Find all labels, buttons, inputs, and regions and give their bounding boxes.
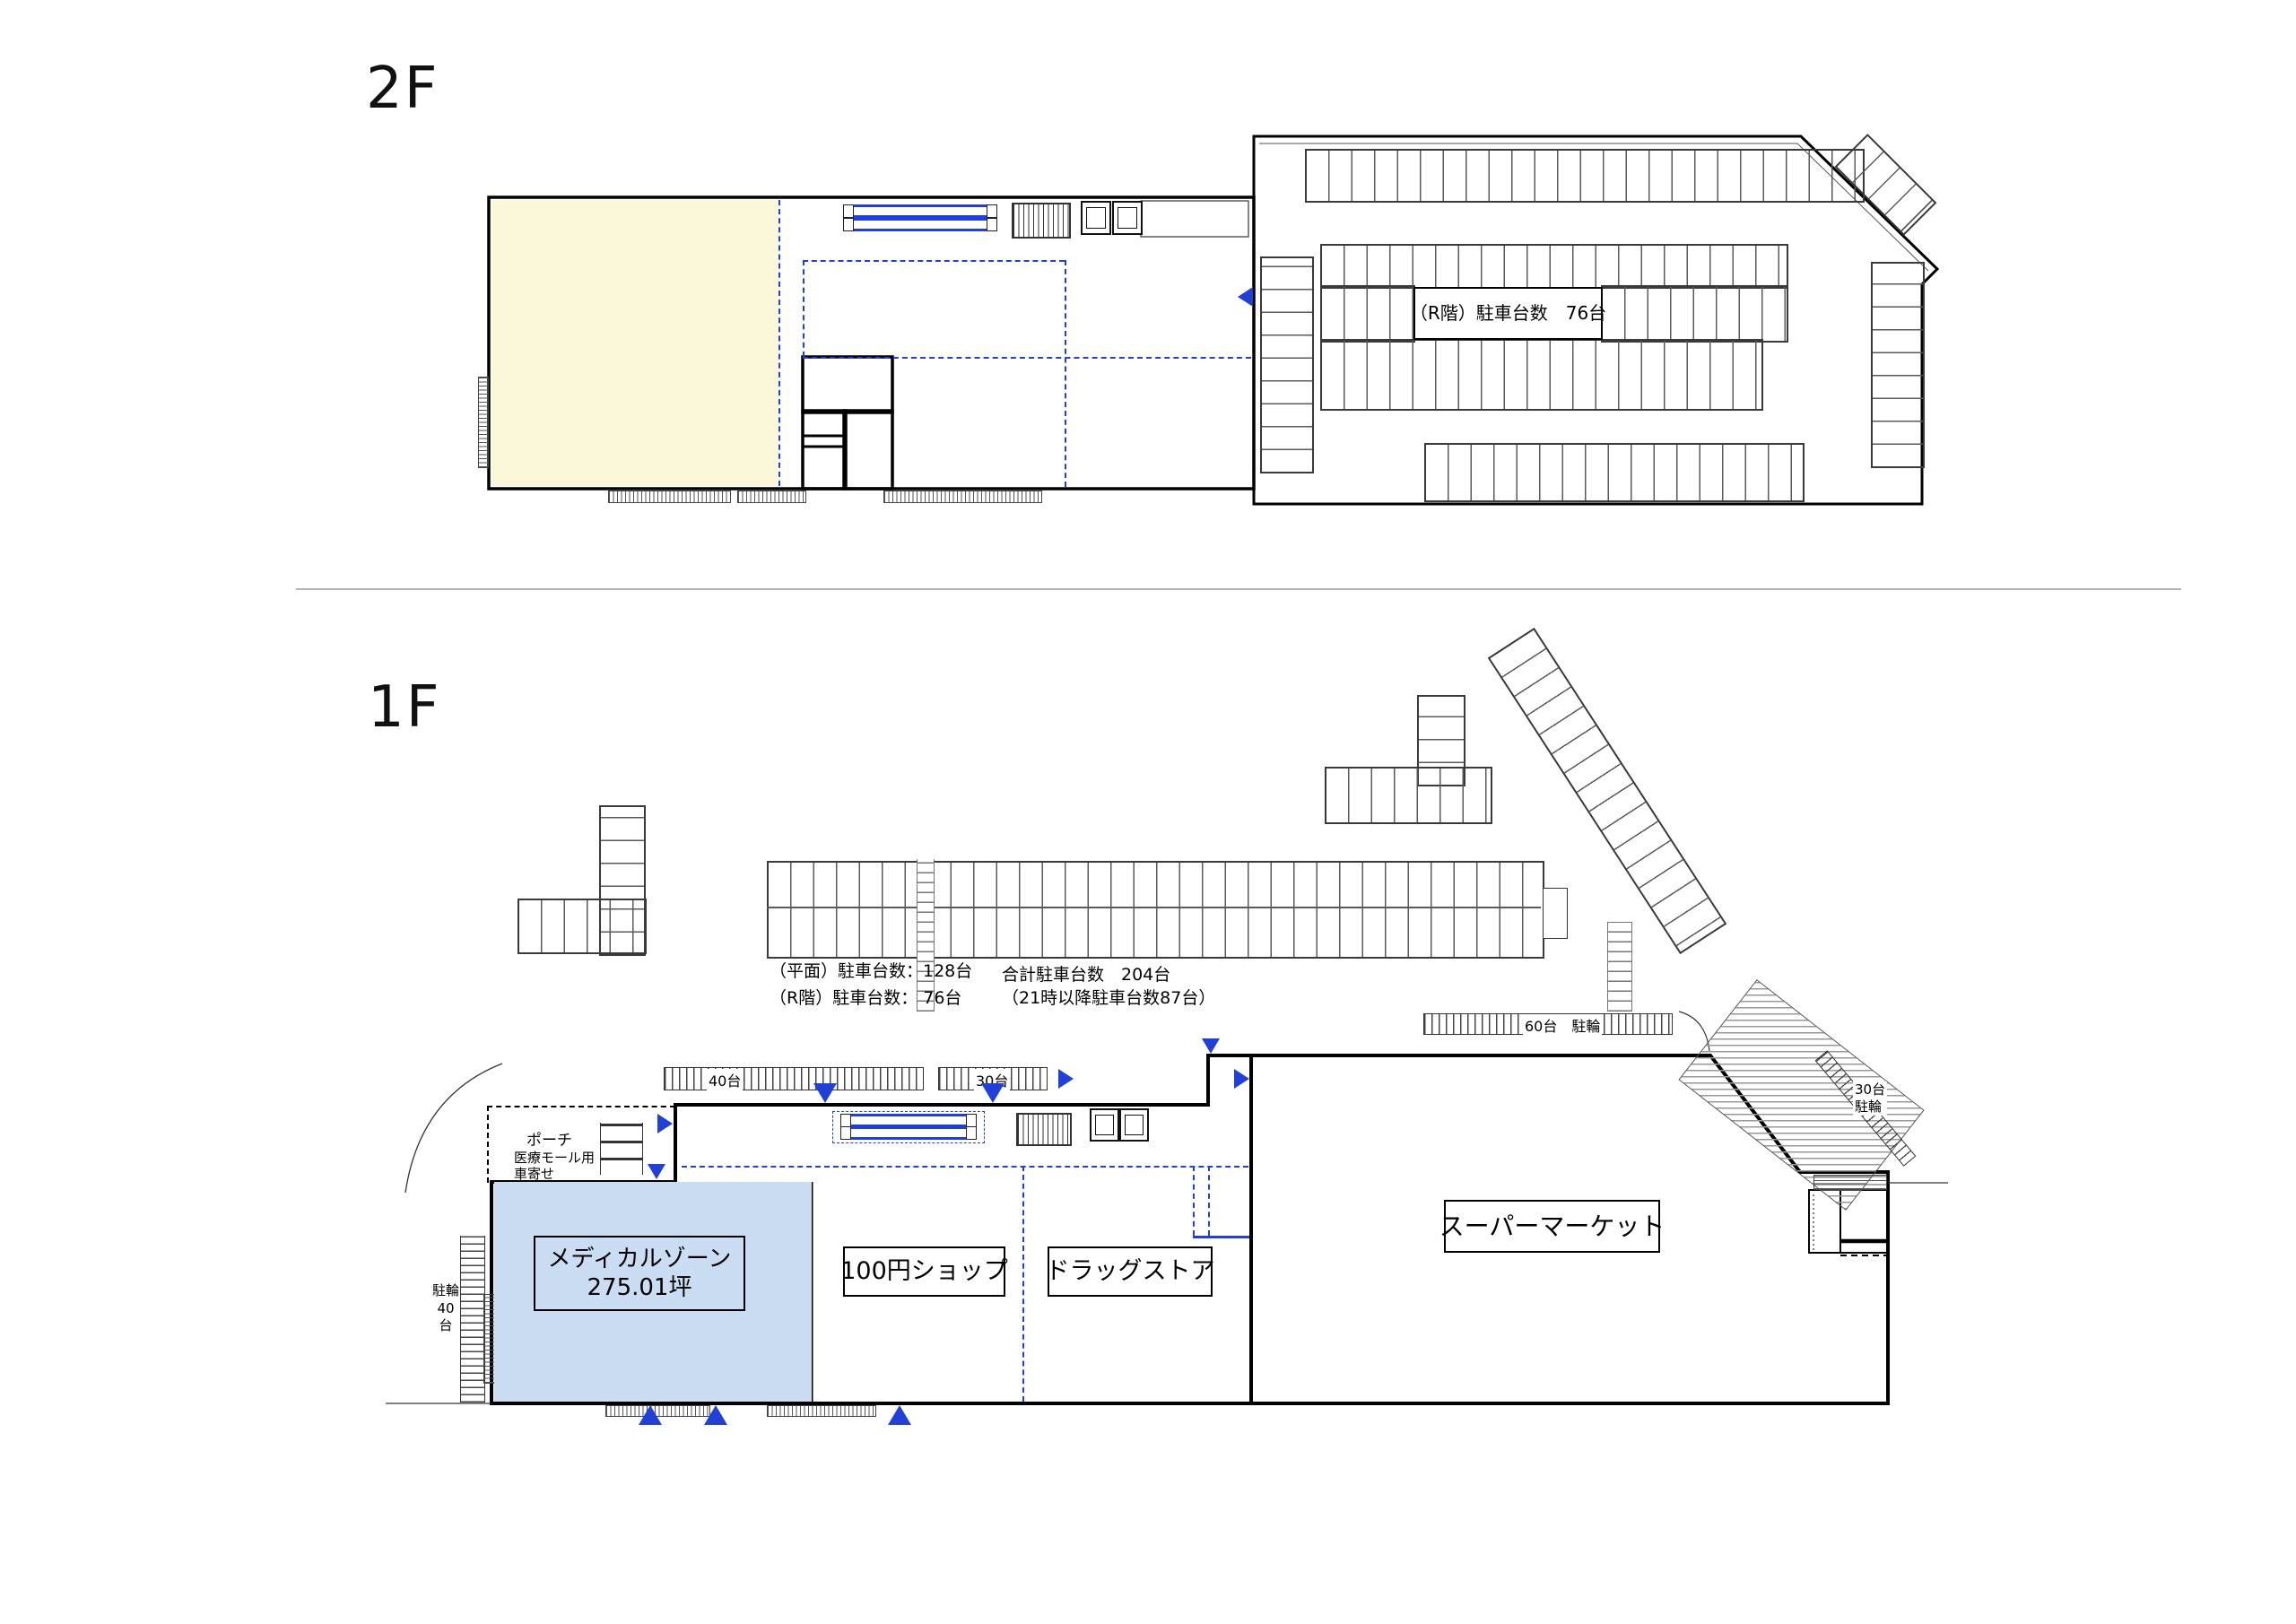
parking-column <box>1260 256 1314 473</box>
floor1-elevator-1 <box>1090 1108 1119 1142</box>
drugstore-label-box: ドラッグストア <box>1048 1246 1213 1297</box>
parking-row <box>1325 767 1492 824</box>
tenant-dashed-line <box>1208 1166 1210 1236</box>
entrance-arrow-up-icon <box>639 1405 662 1425</box>
bike-60-label: 60台 駐輪 <box>1523 1014 1602 1036</box>
floor2-dashed-line <box>1065 260 1066 487</box>
floor2-dashed-line <box>803 260 804 357</box>
parking-row-midline <box>767 907 1541 908</box>
stats-flat: （平面）駐車台数：128台 <box>770 958 972 982</box>
parking-row <box>1601 285 1788 343</box>
entrance-arrow-right-icon <box>1058 1069 1074 1089</box>
crosswalk <box>1607 922 1632 1012</box>
canopy-hatch <box>608 491 731 503</box>
floor2-zone-boundary-dashed <box>778 200 780 486</box>
stats-roof: （R階）駐車台数： 76台 <box>770 985 961 1009</box>
medical-zone-label-box: メディカルゾーン 275.01坪 <box>534 1236 745 1311</box>
parking-row-end-box <box>1543 888 1568 939</box>
floor2-escalator <box>843 204 997 231</box>
entrance-arrow-left-icon <box>1238 287 1253 307</box>
shop100-label-box: 100円ショップ <box>843 1246 1005 1297</box>
stats-total: 合計駐車台数 204台 <box>1002 961 1170 986</box>
floor2-dashed-line <box>803 260 1065 262</box>
floor2-elevator-2 <box>1112 201 1143 235</box>
bike-rack <box>664 1067 924 1090</box>
tenant-dashed-line <box>682 1166 1248 1168</box>
drugstore-name: ドラッグストア <box>1046 1256 1215 1287</box>
rooftop-parking-note: （R階）駐車台数 76台 <box>1410 302 1606 325</box>
canopy-hatch <box>737 491 806 503</box>
entrance-arrow-right-icon <box>1234 1069 1249 1089</box>
supermarket-name: スーパーマーケット <box>1439 1211 1665 1242</box>
parking-row <box>1320 339 1763 411</box>
parking-row <box>1424 443 1805 502</box>
porch-label3: 車寄せ <box>514 1164 554 1183</box>
entrance-arrow-down-icon <box>1202 1038 1220 1054</box>
parking-row <box>1320 244 1788 289</box>
floor1-label: 1F <box>368 674 441 741</box>
entrance-arrow-down-icon <box>813 1083 837 1103</box>
entrance-arrow-down-icon <box>981 1083 1004 1103</box>
entrance-arrow-down-icon <box>648 1164 665 1179</box>
parking-column <box>1871 262 1925 468</box>
parking-row <box>1320 285 1415 343</box>
porch-label: ポーチ <box>526 1127 572 1150</box>
floor2-dashed-line <box>803 357 1251 359</box>
canopy-hatch <box>883 491 1042 503</box>
tenant-dashed-line <box>1193 1166 1195 1236</box>
supermarket-label-box: スーパーマーケット <box>1444 1200 1660 1253</box>
floor2-elevator-1 <box>1081 201 1111 235</box>
floor1-elevator-2 <box>1119 1108 1149 1142</box>
bike-40-label: 40台 <box>707 1069 743 1090</box>
floor1-escalator <box>840 1114 977 1139</box>
side-grating <box>478 377 489 468</box>
stats-night: （21時以降駐車台数87台） <box>1002 985 1215 1009</box>
entrance-arrow-up-icon <box>704 1405 727 1425</box>
entrance-arrow-right-icon <box>657 1114 673 1133</box>
rooftop-parking-note-box: （R階）駐車台数 76台 <box>1413 287 1603 340</box>
bike-diag-label: 30台 駐輪 <box>1853 1081 1887 1116</box>
drop-off-symbol <box>600 1123 643 1175</box>
bike-rack-left <box>460 1236 485 1403</box>
tenant-solid-line <box>1193 1236 1249 1238</box>
floor1-stairs <box>1016 1113 1072 1146</box>
canopy-hatch <box>767 1405 876 1417</box>
shop100-name: 100円ショップ <box>840 1256 1008 1287</box>
tenant-dashed-line <box>1022 1166 1024 1402</box>
parking-row <box>517 899 647 954</box>
building-outlines <box>0 0 2296 1624</box>
floor2-label: 2F <box>366 56 439 122</box>
medical-zone-area: 275.01坪 <box>587 1273 692 1303</box>
medical-zone-name: メディカルゾーン <box>548 1245 732 1274</box>
parking-row-double <box>767 861 1544 959</box>
parking-row <box>1305 149 1865 203</box>
floor2-yellow-zone <box>491 200 780 486</box>
entrance-arrow-up-icon <box>888 1405 911 1425</box>
floor2-stairs <box>1012 203 1071 239</box>
floor-plan-canvas: 2F （R階）駐車台数 76台 1F <box>0 0 2296 1624</box>
bike-left-label: 駐輪 40台 <box>430 1282 461 1335</box>
side-grating <box>1813 1175 1887 1190</box>
